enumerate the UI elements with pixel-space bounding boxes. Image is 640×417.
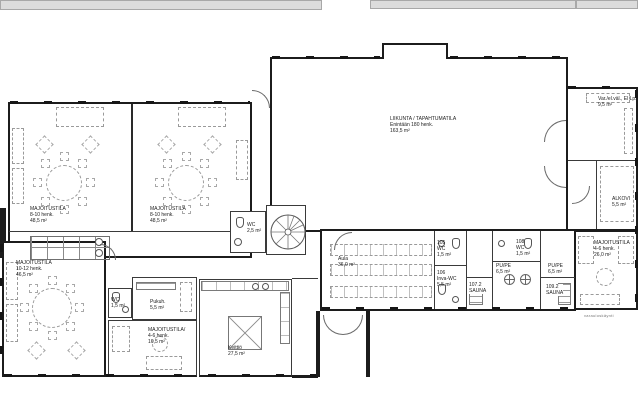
furniture-alcove-bed (600, 166, 634, 222)
chair (29, 322, 38, 331)
furniture-bed (112, 326, 130, 352)
chair (48, 331, 57, 340)
wall-segment (292, 278, 318, 279)
wall-segment (435, 265, 466, 266)
label-wc-105: 105 WC 1,5 m² (437, 240, 451, 258)
furniture-locker (580, 294, 620, 305)
chair (41, 197, 50, 206)
room-area: 36,0 m² (338, 262, 355, 268)
wall-segment (492, 231, 493, 309)
furniture-wardrobe (236, 140, 248, 180)
terrace-deck (0, 0, 322, 10)
wall-hall-bump (382, 43, 448, 59)
chair (200, 159, 209, 168)
wall-porch (366, 311, 370, 377)
chair (78, 197, 87, 206)
sink-icon (262, 283, 269, 290)
chair (78, 159, 87, 168)
room-name: SAUNA (546, 290, 563, 296)
window-band (568, 86, 636, 89)
chair (29, 284, 38, 293)
label-majoitustila-3: MAJOITUSTILA 10-12 henk. 46,5 m² (16, 260, 52, 278)
room-area: 27,5 m² (228, 351, 245, 357)
room-area: 163,5 m² (390, 128, 456, 134)
furniture-sofa (12, 168, 24, 204)
furniture-bed (578, 236, 594, 264)
shower-icon (504, 274, 515, 285)
label-wc-108: 108 WC 1,5 m² (516, 239, 530, 257)
room-hall (270, 57, 568, 232)
chair (75, 303, 84, 312)
sink-icon (498, 240, 505, 247)
furniture-bunk (178, 107, 226, 127)
wall-segment (467, 277, 492, 278)
label-storage: Var./el.väl., El Lp. 9,5 m² (598, 96, 637, 108)
chair (163, 159, 172, 168)
label-hall: LIIKUNTA / TAPAHTUMATILA Enintään 180 he… (390, 116, 456, 134)
label-aula: Aula 36,0 m² (338, 256, 355, 268)
label-keittio: Keittiö 27,5 m² (228, 345, 245, 357)
room-area: 5,5 m² (437, 282, 456, 288)
chair (20, 303, 29, 312)
room-area: 16,5 m² (148, 339, 185, 345)
terrace-deck (576, 0, 638, 9)
furniture-bunk (56, 107, 104, 127)
sink-icon (452, 296, 459, 303)
door-swing-icon (323, 315, 343, 335)
label-sauna-107: 107.2 SAUNA (469, 282, 486, 294)
chair (182, 152, 191, 161)
door-swing-icon (252, 90, 270, 108)
chair (155, 178, 164, 187)
wall-segment (568, 229, 636, 232)
wall-segment (541, 277, 575, 278)
wall-porch (316, 311, 320, 377)
sink-icon (234, 238, 242, 246)
furniture-shelf (624, 108, 633, 154)
window-band (322, 307, 574, 310)
label-wc-entry: WC 2,5 m² (247, 222, 261, 234)
sink-icon (252, 283, 259, 290)
room-area: 1,5 m² (516, 251, 530, 257)
shower-icon (520, 274, 531, 285)
wall-segment (9, 231, 251, 232)
label-sauna-109: 109.2 SAUNA (546, 284, 563, 296)
room-area: 1,5 m² (437, 252, 451, 258)
room-area: 26,0 m² (594, 252, 630, 258)
chair (86, 178, 95, 187)
label-inva-wc-106: 106 Inva-WC 5,5 m² (437, 270, 456, 288)
chair (163, 197, 172, 206)
chair (208, 178, 217, 187)
door-swing-icon (343, 315, 363, 335)
chair (60, 152, 69, 161)
window-band (272, 56, 380, 59)
furniture-round-table (596, 268, 614, 286)
wall-segment (131, 104, 133, 232)
furniture-sofa (12, 128, 24, 164)
furniture-round-table (46, 165, 82, 201)
wall-segment (434, 231, 435, 309)
room-area: 2,5 m² (247, 228, 261, 234)
kitchen-counter (201, 281, 289, 291)
wall-segment (568, 160, 636, 161)
label-wc-corridor: WC 1,5 m² (111, 297, 125, 309)
window-band (0, 244, 3, 374)
label-majoitustila-2: MAJOITUSTILA 8-10 henk. 48,5 m² (150, 206, 186, 224)
label-alkovi: ALKOVI 5,5 m² (612, 196, 630, 208)
wall-segment (466, 231, 467, 309)
room-area: 48,5 m² (30, 218, 66, 224)
label-majoitustila-4: MAJOITUSTILA/ 4-6 henk. 16,5 m² (148, 327, 185, 345)
room-area: 48,5 m² (150, 218, 186, 224)
furniture-cabinet-divider (31, 247, 109, 248)
furniture-round-table (168, 165, 204, 201)
window-band (4, 374, 316, 377)
terrace-deck (370, 0, 576, 9)
chair (200, 197, 209, 206)
room-area: 6,5 m² (496, 269, 511, 275)
wall-segment (540, 231, 541, 309)
chair (66, 322, 75, 331)
room-area: 5,5 m² (150, 305, 166, 311)
label-majoitustila-1: MAJOITUSTILA 8-10 henk. 48,5 m² (30, 206, 66, 224)
furniture-sofa (6, 304, 18, 342)
window-band (450, 56, 566, 59)
furniture-locker (180, 282, 192, 312)
toilet-icon (236, 217, 244, 228)
chair (66, 284, 75, 293)
label-pukuhuone: Pukuh. 5,5 m² (150, 299, 166, 311)
wall-segment (596, 161, 597, 229)
window-band (635, 90, 638, 308)
furniture-sofa (146, 356, 182, 370)
window-band (10, 101, 250, 104)
label-majoitustila-5: MAJOITUSTILA 4-6 henk. 26,0 m² (594, 240, 630, 258)
label-pupe-2: PU/PE 6,5 m² (548, 263, 563, 275)
exit-note-text: varauloskäynti (584, 313, 614, 318)
floor-plan-drawing: LIIKUNTA / TAPAHTUMATILA Enintään 180 he… (0, 0, 640, 417)
furniture-bench (136, 282, 176, 290)
toilet-icon (452, 238, 460, 249)
kitchen-counter (280, 292, 290, 344)
room-area: 9,5 m² (598, 102, 637, 108)
furniture-long-table (330, 286, 432, 298)
chair (41, 159, 50, 168)
exit-note: varauloskäynti (584, 313, 614, 318)
room-area: 5,5 m² (612, 202, 630, 208)
spiral-stair-icon (268, 208, 308, 254)
room-area: 6,5 m² (548, 269, 563, 275)
chair (33, 178, 42, 187)
room-area: 1,5 m² (111, 303, 125, 309)
room-name: SAUNA (469, 288, 486, 294)
label-pupe-1: PU/PE 6,5 m² (496, 263, 511, 275)
room-area: 46,5 m² (16, 272, 52, 278)
